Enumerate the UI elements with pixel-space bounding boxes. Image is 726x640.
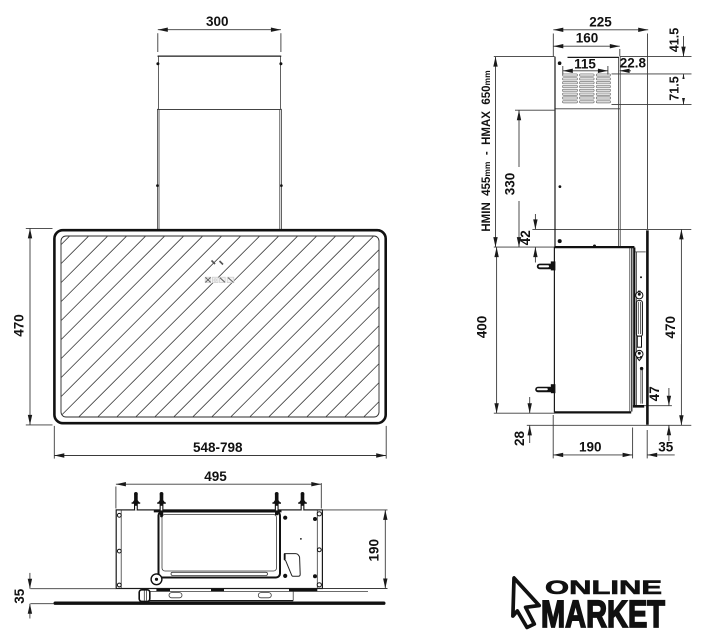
svg-text:41.5: 41.5	[668, 28, 682, 52]
svg-text:548-798: 548-798	[193, 440, 243, 455]
svg-text:115: 115	[574, 57, 596, 72]
svg-text:470: 470	[12, 314, 27, 337]
svg-text:35: 35	[658, 440, 674, 455]
svg-text:190: 190	[579, 440, 602, 455]
svg-text:28: 28	[512, 431, 527, 447]
svg-text:225: 225	[589, 14, 612, 29]
svg-text:71.5: 71.5	[668, 76, 682, 100]
svg-text:42: 42	[518, 230, 533, 245]
svg-text:300: 300	[206, 14, 229, 29]
svg-text:160: 160	[576, 31, 599, 46]
svg-text:35: 35	[12, 588, 27, 604]
svg-text:22.8: 22.8	[620, 55, 647, 70]
svg-text:HMIN 455mm - HMAX 650mm: HMIN 455mm - HMAX 650mm	[481, 70, 493, 232]
svg-text:MARKET: MARKET	[541, 594, 665, 636]
svg-text:400: 400	[475, 316, 490, 339]
svg-text:190: 190	[367, 539, 382, 562]
svg-text:495: 495	[204, 469, 227, 484]
svg-text:330: 330	[503, 173, 518, 196]
svg-text:47: 47	[647, 386, 662, 401]
svg-text:470: 470	[663, 316, 678, 339]
